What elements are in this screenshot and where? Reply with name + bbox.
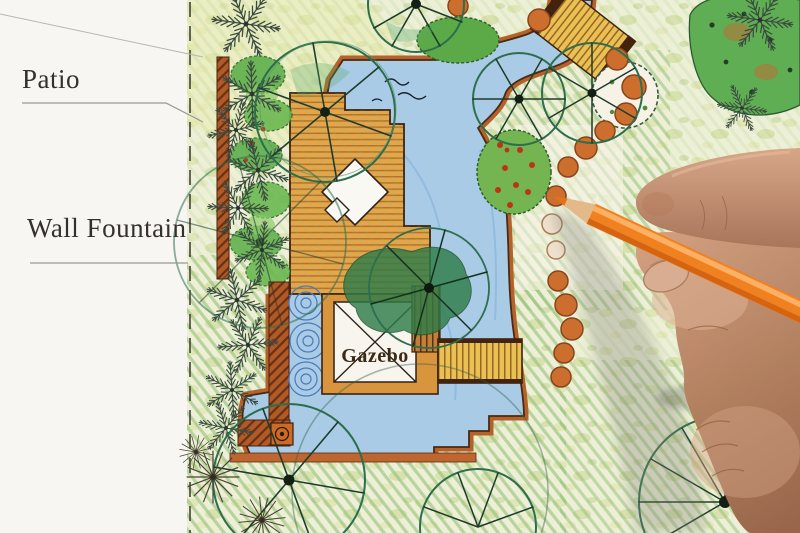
gazebo-label: Gazebo [341,345,408,367]
berry-shrub [477,130,551,214]
pond-south-ledge [230,453,476,462]
wall-fountain-label: Wall Fountain [27,213,187,243]
photo-of-landscape-plan: Gazebo [0,0,800,533]
patio-label: Patio [22,64,80,94]
garden-wall [217,57,229,279]
boardwalk [438,339,522,383]
shrub [417,17,499,63]
